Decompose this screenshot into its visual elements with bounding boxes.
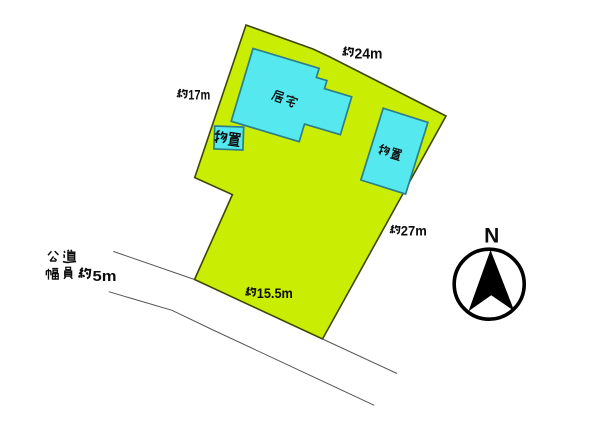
svg-text:24m: 24m <box>355 46 383 63</box>
svg-text:17m: 17m <box>188 87 210 103</box>
svg-text:5m: 5m <box>93 269 117 285</box>
svg-text:N: N <box>484 224 499 247</box>
svg-text:15.5m: 15.5m <box>257 285 293 301</box>
svg-text:27m: 27m <box>401 223 427 238</box>
